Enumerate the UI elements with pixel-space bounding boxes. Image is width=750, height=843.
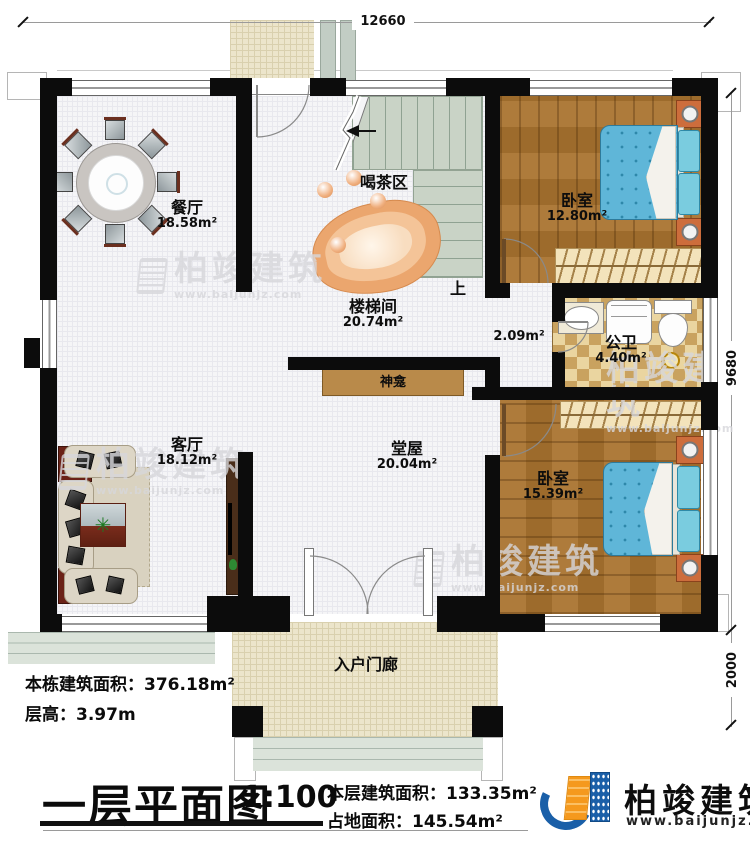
corridor-area-label: 2.09m² xyxy=(493,330,544,345)
brand-logo: 柏竣建筑 www.baijunjz.com xyxy=(540,770,750,838)
window xyxy=(62,616,207,632)
bed-pillow xyxy=(677,510,700,552)
tv-screen xyxy=(228,503,232,555)
tea-stool xyxy=(317,182,333,198)
building-area-label: 本栋建筑面积： xyxy=(25,675,144,695)
sofa-pillow xyxy=(75,450,94,469)
window xyxy=(530,80,672,96)
toilet-tank xyxy=(654,300,692,314)
floor-plan-canvas: 12660 9680 2000 xyxy=(0,0,750,843)
interior-wall xyxy=(236,96,252,292)
wall xyxy=(446,78,530,96)
window xyxy=(703,430,718,555)
plant-icon: ✳ xyxy=(95,513,112,537)
room-label-bathroom: 公卫 4.40m² xyxy=(595,334,646,367)
window xyxy=(703,298,718,382)
nightstand xyxy=(676,554,704,582)
top-porch-floor xyxy=(230,20,314,78)
bed-pillow xyxy=(678,130,700,172)
land-area-label: 占地面积： xyxy=(327,812,412,832)
sofa-pillow xyxy=(75,575,94,594)
left-terrace-steps xyxy=(8,632,215,664)
floor-height-label: 层高： xyxy=(25,705,76,725)
building-area-value: 376.18m² xyxy=(144,675,235,695)
wall xyxy=(310,78,346,96)
nightstand xyxy=(676,100,703,128)
wall xyxy=(40,368,57,632)
interior-wall xyxy=(472,387,701,400)
wall xyxy=(485,614,545,632)
sofa-pillow xyxy=(66,546,86,566)
wardrobe xyxy=(555,248,703,284)
dining-chair xyxy=(157,172,177,192)
dining-chair xyxy=(105,120,125,140)
tea-stool xyxy=(370,193,386,209)
bed-pillow xyxy=(677,466,700,509)
room-label-porch: 入户门廊 xyxy=(334,656,398,674)
brand-website: www.baijunjz.com xyxy=(626,814,750,829)
interior-wall xyxy=(485,96,500,283)
room-label-living: 客厅 18.12m² xyxy=(157,436,217,469)
room-label-hall: 堂屋 20.04m² xyxy=(377,440,437,473)
land-area-stat: 占地面积：145.54m² xyxy=(327,807,503,832)
room-label-bedroom1: 卧室 12.80m² xyxy=(547,192,607,225)
nightstand xyxy=(676,436,704,464)
plant-icon xyxy=(229,559,237,570)
wall xyxy=(210,78,252,96)
interior-wall xyxy=(485,283,510,298)
floor-drain xyxy=(663,352,680,369)
land-area-value: 145.54m² xyxy=(412,812,503,832)
right-lower-dimension-label: 2000 xyxy=(725,643,741,697)
room-label-dining: 餐厅 18.58m² xyxy=(157,199,217,232)
lazy-susan xyxy=(106,173,128,195)
bed-pillow xyxy=(678,173,700,215)
window xyxy=(42,300,57,368)
interior-wall xyxy=(238,452,253,614)
right-dimension-line xyxy=(731,93,732,727)
logo-building-orange-icon xyxy=(564,776,592,820)
floor-area-stat: 本层建筑面积：133.35m² xyxy=(327,779,537,804)
sofa-pillow xyxy=(106,576,125,595)
right-dimension-label: 9680 xyxy=(725,341,741,395)
sofa-top xyxy=(64,445,136,478)
wall xyxy=(701,382,718,430)
coffee-table: ✳ xyxy=(80,503,126,547)
stairs-up-label: 上 xyxy=(450,280,466,298)
interior-wall xyxy=(485,455,500,614)
wall xyxy=(437,596,485,632)
exterior-pilaster xyxy=(24,338,40,368)
washer-lid-lines xyxy=(611,305,647,317)
window xyxy=(346,80,446,96)
porch-pillar xyxy=(472,706,503,737)
interior-wall xyxy=(552,283,701,298)
floor-area-value: 133.35m² xyxy=(446,784,537,804)
room-label-bedroom2: 卧室 15.39m² xyxy=(523,470,583,503)
porch-pillar xyxy=(232,706,263,737)
facade-line xyxy=(57,70,673,71)
stair-break-bar xyxy=(352,96,370,170)
shrine-label: 神龛 xyxy=(380,375,406,390)
tea-stool xyxy=(330,237,346,253)
window xyxy=(545,616,660,632)
stair-upper-flight xyxy=(352,96,483,170)
building-area-stat: 本栋建筑面积：376.18m² xyxy=(25,670,235,695)
interior-wall xyxy=(552,352,565,387)
wall xyxy=(701,78,718,298)
wall xyxy=(40,78,57,300)
title-underline-thick xyxy=(40,821,323,826)
pillar-base xyxy=(481,737,503,781)
wall xyxy=(40,614,62,632)
sofa-bottom xyxy=(64,568,138,604)
floor-area-label: 本层建筑面积： xyxy=(327,784,446,804)
door-leaf xyxy=(304,548,314,616)
wardrobe xyxy=(560,401,703,429)
interior-wall xyxy=(288,357,500,370)
dining-chair xyxy=(105,224,125,244)
room-label-tea: 喝茶区 xyxy=(360,174,408,192)
porch-steps xyxy=(253,737,483,771)
entry-porch-floor xyxy=(232,622,498,737)
logo-building-blue-icon xyxy=(590,772,610,822)
floor-height-stat: 层高：3.97m xyxy=(25,700,136,725)
shrine-cabinet: 神龛 xyxy=(322,369,464,396)
door-leaf xyxy=(423,548,433,616)
room-label-stairwell: 楼梯间 20.74m² xyxy=(343,298,403,331)
window xyxy=(72,80,210,96)
nightstand xyxy=(676,218,703,246)
door-threshold xyxy=(252,94,310,95)
sofa-pillow xyxy=(104,451,123,470)
wall xyxy=(660,614,718,632)
plan-scale: 1:100 xyxy=(242,780,338,815)
floor-height-value: 3.97m xyxy=(76,705,136,725)
top-dimension-label: 12660 xyxy=(352,14,414,30)
sink-basin xyxy=(564,306,599,330)
interior-wall xyxy=(552,298,565,322)
